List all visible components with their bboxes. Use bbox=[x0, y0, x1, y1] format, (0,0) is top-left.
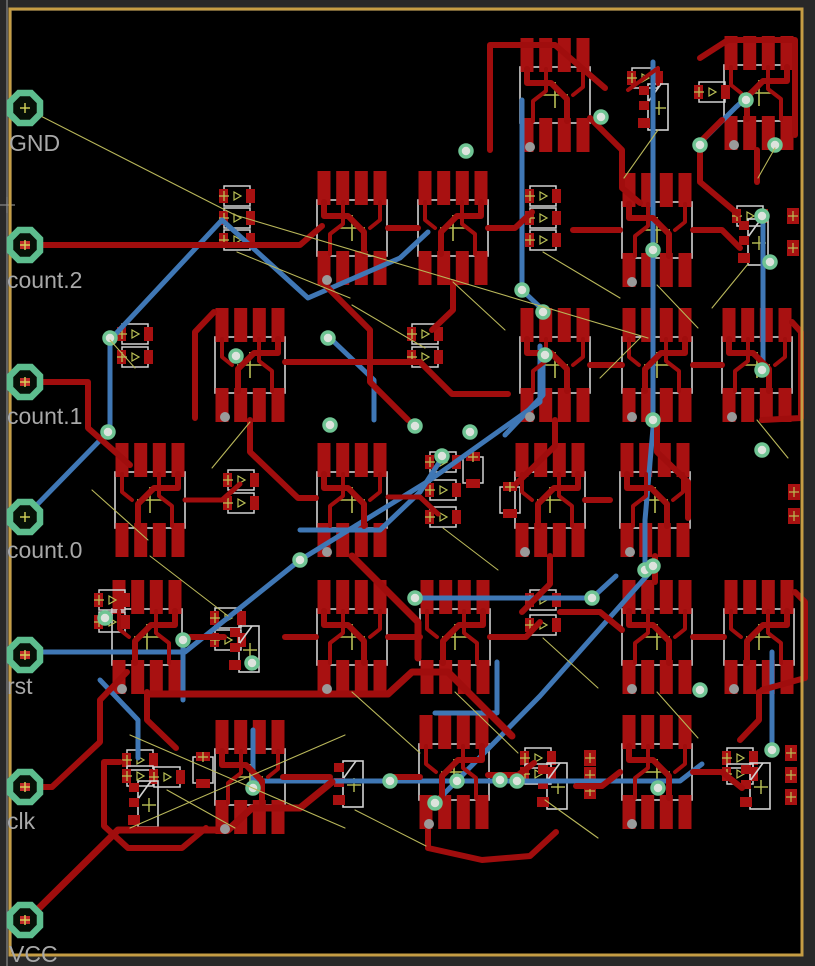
via[interactable] bbox=[516, 284, 528, 296]
smd-pad bbox=[333, 795, 345, 805]
via-ring-icon bbox=[647, 560, 659, 572]
silkscreen-dot-icon bbox=[220, 824, 230, 834]
via-ring-icon bbox=[322, 332, 334, 344]
via[interactable] bbox=[694, 684, 706, 696]
silkscreen-dot-icon bbox=[117, 684, 127, 694]
component-pad-column[interactable] bbox=[785, 745, 797, 805]
via-ring-icon bbox=[740, 94, 752, 106]
via-ring-icon bbox=[451, 775, 463, 787]
via[interactable] bbox=[647, 414, 659, 426]
smd-pad bbox=[641, 660, 654, 694]
via[interactable] bbox=[464, 426, 476, 438]
via-ring-icon bbox=[384, 775, 396, 787]
via[interactable] bbox=[246, 657, 258, 669]
via-ring-icon bbox=[756, 210, 768, 222]
smd-pad bbox=[374, 171, 387, 205]
net-pad-count.2[interactable] bbox=[10, 230, 40, 260]
smd-pad bbox=[476, 795, 489, 829]
smd-pad bbox=[452, 510, 461, 524]
smd-pad bbox=[128, 815, 140, 825]
smd-pad bbox=[172, 523, 185, 557]
via-ring-icon bbox=[324, 419, 336, 431]
smd-pad bbox=[246, 211, 255, 225]
smd-pad bbox=[679, 173, 692, 207]
net-label-count.0: count.0 bbox=[7, 537, 82, 563]
via[interactable] bbox=[99, 612, 111, 624]
smd-pad bbox=[153, 443, 166, 477]
via[interactable] bbox=[177, 634, 189, 646]
via-ring-icon bbox=[756, 364, 768, 376]
smd-pad bbox=[475, 251, 488, 285]
via-ring-icon bbox=[694, 139, 706, 151]
smd-pad bbox=[434, 350, 443, 364]
smd-pad bbox=[660, 173, 673, 207]
smd-pad bbox=[679, 795, 692, 829]
smd-pad bbox=[355, 171, 368, 205]
smd-pad bbox=[355, 443, 368, 477]
net-pad-vcc[interactable] bbox=[10, 905, 40, 935]
smd-pad bbox=[456, 251, 469, 285]
via-ring-icon bbox=[647, 244, 659, 256]
silkscreen-dot-icon bbox=[627, 277, 637, 287]
via[interactable] bbox=[539, 349, 551, 361]
via[interactable] bbox=[740, 94, 752, 106]
smd-pad bbox=[116, 523, 129, 557]
smd-pad bbox=[336, 660, 349, 694]
via-ring-icon bbox=[246, 657, 258, 669]
via[interactable] bbox=[756, 444, 768, 456]
smd-pad bbox=[150, 580, 163, 614]
smd-pad bbox=[272, 388, 285, 422]
via[interactable] bbox=[451, 775, 463, 787]
silkscreen-dot-icon bbox=[525, 412, 535, 422]
smd-pad bbox=[539, 118, 552, 152]
smd-pad bbox=[216, 308, 229, 342]
smd-pad bbox=[738, 253, 750, 263]
smd-pad bbox=[466, 479, 480, 488]
via-ring-icon bbox=[429, 797, 441, 809]
smd-pad bbox=[660, 715, 673, 749]
net-pad-count.0[interactable] bbox=[10, 502, 40, 532]
silkscreen-dot-icon bbox=[220, 412, 230, 422]
silkscreen-dot-icon bbox=[520, 547, 530, 557]
via-ring-icon bbox=[586, 592, 598, 604]
smd-pad bbox=[150, 660, 163, 694]
via[interactable] bbox=[294, 554, 306, 566]
smd-pad bbox=[456, 171, 469, 205]
smd-pad bbox=[552, 618, 561, 632]
silkscreen-dot-icon bbox=[627, 819, 637, 829]
silkscreen-dot-icon bbox=[627, 684, 637, 694]
smd-pad bbox=[641, 795, 654, 829]
smd-pad bbox=[721, 85, 730, 99]
net-pad-count.1[interactable] bbox=[10, 367, 40, 397]
smd-pad bbox=[762, 580, 775, 614]
smd-pad bbox=[131, 580, 144, 614]
smd-pad bbox=[250, 473, 259, 487]
smd-pad bbox=[577, 308, 590, 342]
smd-pad bbox=[250, 496, 259, 510]
via[interactable] bbox=[494, 774, 506, 786]
via[interactable] bbox=[511, 775, 523, 787]
via-ring-icon bbox=[177, 634, 189, 646]
via-ring-icon bbox=[511, 775, 523, 787]
via-ring-icon bbox=[694, 684, 706, 696]
smd-pad bbox=[577, 118, 590, 152]
smd-pad bbox=[741, 308, 754, 342]
smd-pad bbox=[725, 580, 738, 614]
smd-pad bbox=[230, 628, 240, 637]
smd-pad bbox=[457, 795, 470, 829]
smd-pad bbox=[153, 523, 166, 557]
smd-pad bbox=[129, 798, 139, 807]
smd-pad bbox=[421, 660, 434, 694]
via[interactable] bbox=[647, 560, 659, 572]
smd-pad bbox=[336, 580, 349, 614]
pcb-editor-viewport: GNDcount.2count.1count.0rstclkVCC bbox=[0, 0, 815, 966]
smd-pad bbox=[741, 765, 751, 774]
smd-pad bbox=[176, 770, 185, 784]
silkscreen-dot-icon bbox=[729, 684, 739, 694]
via[interactable] bbox=[102, 426, 114, 438]
smd-pad bbox=[237, 611, 246, 625]
via[interactable] bbox=[652, 782, 664, 794]
via-ring-icon bbox=[494, 774, 506, 786]
smd-pad bbox=[639, 101, 649, 110]
net-label-count.1: count.1 bbox=[7, 403, 82, 429]
via[interactable] bbox=[756, 364, 768, 376]
via[interactable] bbox=[429, 797, 441, 809]
net-label-vcc: VCC bbox=[9, 941, 58, 966]
smd-pad bbox=[553, 523, 566, 557]
smd-pad bbox=[552, 189, 561, 203]
silkscreen-dot-icon bbox=[625, 547, 635, 557]
smd-pad bbox=[419, 171, 432, 205]
via-ring-icon bbox=[294, 554, 306, 566]
smd-pad bbox=[253, 388, 266, 422]
smd-pad bbox=[169, 660, 182, 694]
smd-pad bbox=[144, 327, 153, 341]
smd-pad bbox=[134, 443, 147, 477]
smd-pad bbox=[638, 118, 650, 128]
smd-pad bbox=[572, 523, 585, 557]
smd-pad bbox=[623, 308, 636, 342]
via[interactable] bbox=[764, 256, 776, 268]
silkscreen-dot-icon bbox=[322, 684, 332, 694]
smd-pad bbox=[272, 720, 285, 754]
smd-pad bbox=[743, 580, 756, 614]
via-ring-icon bbox=[409, 420, 421, 432]
smd-pad bbox=[577, 388, 590, 422]
smd-pad bbox=[246, 189, 255, 203]
via[interactable] bbox=[230, 350, 242, 362]
smd-pad bbox=[196, 779, 210, 788]
net-pad-gnd[interactable] bbox=[10, 93, 40, 123]
via-ring-icon bbox=[464, 426, 476, 438]
smd-pad bbox=[129, 783, 139, 792]
via[interactable] bbox=[409, 592, 421, 604]
smd-pad bbox=[229, 660, 241, 670]
smd-pad bbox=[374, 660, 387, 694]
via[interactable] bbox=[756, 210, 768, 222]
smd-pad bbox=[677, 523, 690, 557]
smd-pad bbox=[740, 797, 752, 807]
smd-pad bbox=[538, 765, 548, 774]
smd-pad bbox=[503, 509, 517, 518]
component-pad-column[interactable] bbox=[584, 750, 596, 799]
smd-pad bbox=[121, 593, 130, 607]
net-label-clk: clk bbox=[7, 808, 36, 834]
silkscreen-dot-icon bbox=[424, 819, 434, 829]
smd-pad bbox=[660, 580, 673, 614]
via[interactable] bbox=[460, 145, 472, 157]
via-ring-icon bbox=[652, 782, 664, 794]
smd-pad bbox=[641, 715, 654, 749]
smd-pad bbox=[739, 221, 749, 230]
via[interactable] bbox=[769, 139, 781, 151]
smd-pad bbox=[679, 715, 692, 749]
via[interactable] bbox=[324, 419, 336, 431]
smd-pad bbox=[419, 251, 432, 285]
via-ring-icon bbox=[769, 139, 781, 151]
via[interactable] bbox=[595, 111, 607, 123]
via-ring-icon bbox=[460, 145, 472, 157]
pcb-canvas[interactable]: GNDcount.2count.1count.0rstclkVCC bbox=[0, 0, 815, 966]
via[interactable] bbox=[104, 332, 116, 344]
smd-pad bbox=[552, 211, 561, 225]
smd-pad bbox=[149, 753, 158, 767]
via-ring-icon bbox=[102, 426, 114, 438]
smd-pad bbox=[121, 615, 130, 629]
via[interactable] bbox=[586, 592, 598, 604]
smd-pad bbox=[144, 350, 153, 364]
via-ring-icon bbox=[764, 256, 776, 268]
via-ring-icon bbox=[595, 111, 607, 123]
smd-pad bbox=[230, 643, 240, 652]
smd-pad bbox=[336, 171, 349, 205]
silkscreen-dot-icon bbox=[525, 142, 535, 152]
smd-pad bbox=[336, 443, 349, 477]
via-ring-icon bbox=[436, 450, 448, 462]
via-ring-icon bbox=[409, 592, 421, 604]
via-ring-icon bbox=[516, 284, 528, 296]
via-ring-icon bbox=[766, 744, 778, 756]
smd-pad bbox=[253, 308, 266, 342]
smd-pad bbox=[438, 715, 451, 749]
via[interactable] bbox=[694, 139, 706, 151]
smd-pad bbox=[234, 308, 247, 342]
smd-pad bbox=[457, 715, 470, 749]
via-ring-icon bbox=[99, 612, 111, 624]
net-label-gnd: GND bbox=[9, 130, 60, 156]
smd-pad bbox=[552, 233, 561, 247]
via-ring-icon bbox=[230, 350, 242, 362]
via-ring-icon bbox=[539, 349, 551, 361]
smd-pad bbox=[679, 580, 692, 614]
smd-pad bbox=[679, 253, 692, 287]
silkscreen-dot-icon bbox=[322, 275, 332, 285]
smd-pad bbox=[639, 86, 649, 95]
smd-pad bbox=[355, 580, 368, 614]
net-pad-rst[interactable] bbox=[10, 640, 40, 670]
net-label-rst: rst bbox=[7, 673, 33, 699]
smd-pad bbox=[477, 660, 490, 694]
via-ring-icon bbox=[104, 332, 116, 344]
via[interactable] bbox=[322, 332, 334, 344]
smd-pad bbox=[437, 171, 450, 205]
smd-pad bbox=[679, 388, 692, 422]
via-ring-icon bbox=[647, 414, 659, 426]
smd-pad bbox=[679, 660, 692, 694]
via[interactable] bbox=[409, 420, 421, 432]
smd-pad bbox=[334, 763, 344, 772]
silkscreen-dot-icon bbox=[322, 547, 332, 557]
smd-pad bbox=[420, 715, 433, 749]
via-ring-icon bbox=[756, 444, 768, 456]
smd-pad bbox=[741, 388, 754, 422]
smd-pad bbox=[234, 720, 247, 754]
smd-pad bbox=[781, 660, 794, 694]
via[interactable] bbox=[384, 775, 396, 787]
silkscreen-dot-icon bbox=[727, 412, 737, 422]
smd-pad bbox=[374, 443, 387, 477]
via[interactable] bbox=[647, 244, 659, 256]
via[interactable] bbox=[766, 744, 778, 756]
via[interactable] bbox=[436, 450, 448, 462]
smd-pad bbox=[779, 308, 792, 342]
smd-pad bbox=[739, 236, 749, 245]
silkscreen-dot-icon bbox=[627, 412, 637, 422]
smd-pad bbox=[452, 483, 461, 497]
net-pad-clk[interactable] bbox=[10, 772, 40, 802]
silkscreen-dot-icon bbox=[729, 140, 739, 150]
net-label-count.2: count.2 bbox=[7, 267, 82, 293]
smd-pad bbox=[660, 308, 673, 342]
smd-pad bbox=[660, 388, 673, 422]
smd-pad bbox=[641, 580, 654, 614]
